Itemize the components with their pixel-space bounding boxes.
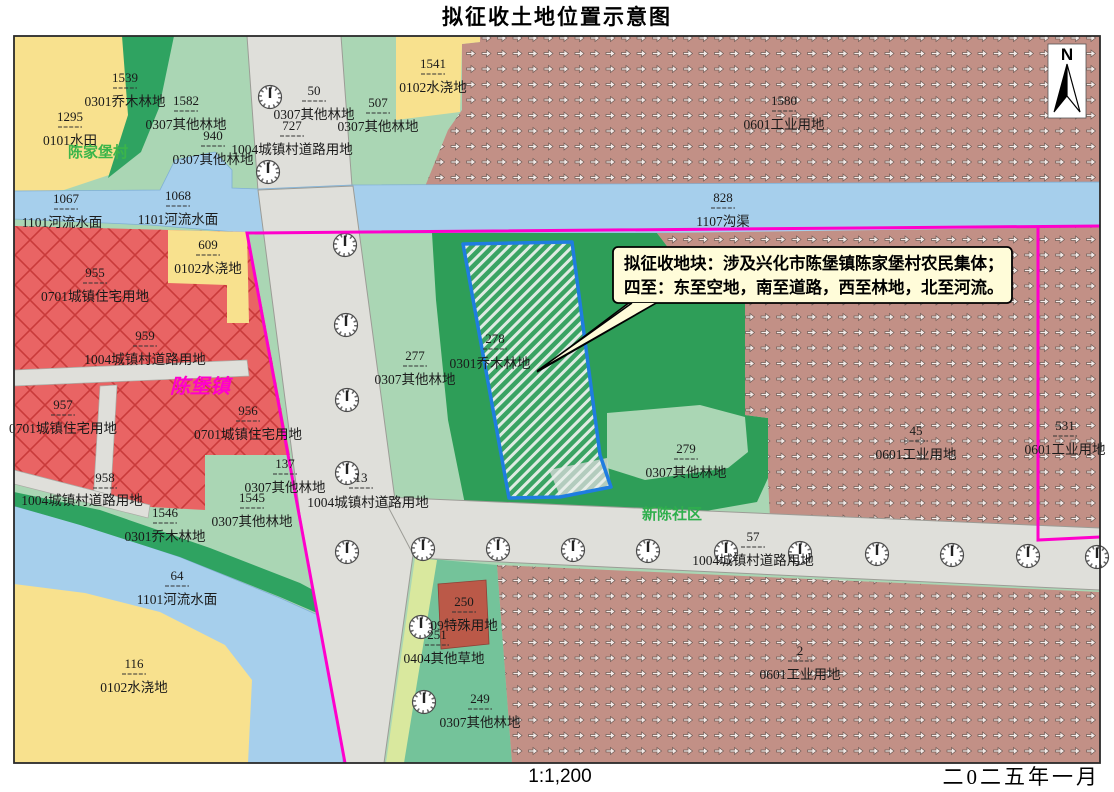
parcel-number: 940	[203, 128, 223, 143]
parcel-type: 0307其他林地	[646, 465, 727, 480]
tree-icon	[336, 389, 359, 412]
date-label: 二0二五年一月	[943, 765, 1101, 789]
parcel-type: 0601工业用地	[760, 667, 841, 682]
tree-icon	[336, 541, 359, 564]
parcel-number: 959	[135, 328, 155, 343]
parcel-number: 1067	[53, 191, 80, 206]
tree-icon	[1086, 546, 1109, 569]
parcel-number: 64	[171, 568, 185, 583]
parcel-type: 1004城镇村道路用地	[307, 495, 429, 510]
parcel-type: 1107沟渠	[696, 214, 750, 229]
tree-icon	[334, 234, 357, 257]
parcel-type: 1004城镇村道路用地	[692, 553, 814, 568]
parcel-type: 0307其他林地	[212, 514, 293, 529]
parcel-number: 1068	[165, 188, 191, 203]
parcel-type: 1004城镇村道路用地	[84, 352, 206, 367]
tree-icon	[257, 161, 280, 184]
parcel-number: 45	[910, 423, 923, 438]
parcel-number: 116	[124, 656, 144, 671]
tree-icon	[259, 86, 282, 109]
parcel-number: 13	[355, 470, 368, 485]
parcel-type: 0701城镇住宅用地	[9, 421, 117, 436]
parcel-type: 0102水浇地	[174, 261, 242, 276]
tree-icon	[562, 539, 585, 562]
tree-icon	[412, 538, 435, 561]
land-acquisition-map: 15390301乔木林地12950101水田15820307其他林地940030…	[0, 0, 1114, 792]
parcel-number: 1546	[152, 505, 179, 520]
parcel-type: 0701城镇住宅用地	[194, 427, 302, 442]
map-canvas: 15390301乔木林地12950101水田15820307其他林地940030…	[0, 0, 1114, 792]
parcel-number: 1545	[239, 490, 265, 505]
callout-line1: 拟征收地块：涉及兴化市陈堡镇陈家堡村农民集体；	[624, 253, 1004, 273]
parcel-number: 137	[275, 456, 295, 471]
parcel-number: 507	[368, 95, 388, 110]
parcel-number: 57	[747, 529, 761, 544]
tree-icon	[941, 544, 964, 567]
parcel-type: 0301乔木林地	[450, 356, 531, 371]
parcel-type: 1101河流水面	[138, 212, 219, 227]
parcel-type: 1101河流水面	[137, 592, 218, 607]
parcel-type: 0701城镇住宅用地	[41, 289, 149, 304]
parcel-type: 0307其他林地	[440, 715, 521, 730]
parcel-number: 1539	[112, 70, 138, 85]
parcel-number: 278	[485, 331, 505, 346]
parcel-number: 1580	[771, 93, 797, 108]
tree-icon	[866, 543, 889, 566]
tree-icon	[487, 538, 510, 561]
parcel-type: 0601工业用地	[1025, 442, 1106, 457]
parcel-type: 0102水浇地	[100, 680, 168, 695]
parcel-number: 1541	[420, 56, 446, 71]
parcel-number: 957	[53, 397, 73, 412]
north-arrow: N	[1048, 44, 1086, 118]
parcel-number: 727	[282, 118, 302, 133]
place-name-0: 陈家堡村	[68, 143, 128, 161]
tree-icon	[1017, 545, 1040, 568]
parcel-type: 0307其他林地	[375, 372, 456, 387]
parcel-type: 0601工业用地	[744, 117, 825, 132]
parcel-number: 1295	[57, 109, 83, 124]
parcel-number: 955	[85, 265, 105, 280]
parcel-type: 0404其他草地	[404, 651, 485, 666]
parcel-type: 0102水浇地	[399, 80, 467, 95]
parcel-number: 828	[713, 190, 733, 205]
parcel-number: 609	[198, 237, 218, 252]
parcel-type: 1004城镇村道路用地	[231, 142, 353, 157]
map-title: 拟征收土地位置示意图	[442, 5, 672, 29]
tree-icon	[637, 540, 660, 563]
parcel-type: 0301乔木林地	[125, 529, 206, 544]
parcel-number: 1582	[173, 93, 199, 108]
parcel-number: 958	[95, 470, 115, 485]
parcel-number: 50	[308, 83, 321, 98]
place-name-2: 新陈社区	[642, 505, 702, 523]
parcel-number: 531	[1055, 418, 1075, 433]
parcel-type: 1101河流水面	[22, 215, 103, 230]
parcel-type: 0301乔木林地	[85, 94, 166, 109]
parcel-number: 251	[427, 627, 447, 642]
parcel-type: 1004城镇村道路用地	[21, 493, 143, 508]
scale-label: 1:1,200	[528, 766, 591, 787]
parcel-number: 956	[238, 403, 258, 418]
industrial-pattern-bottom	[497, 565, 1100, 763]
parcel-number: 2	[797, 643, 804, 658]
parcel-number: 279	[676, 441, 696, 456]
parcel-type: 0601工业用地	[876, 447, 957, 462]
parcel-number: 249	[470, 691, 490, 706]
parcel-number: 277	[405, 348, 425, 363]
tree-icon	[335, 314, 358, 337]
industrial-pattern-top	[424, 36, 1100, 189]
north-label: N	[1061, 45, 1073, 64]
tree-icon	[413, 691, 436, 714]
parcel-number: 250	[454, 594, 474, 609]
callout-line2: 四至：东至空地，南至道路，西至林地，北至河流。	[624, 277, 1004, 297]
place-name-1: 陈堡镇	[170, 375, 233, 398]
parcel-type: 0307其他林地	[338, 119, 419, 134]
